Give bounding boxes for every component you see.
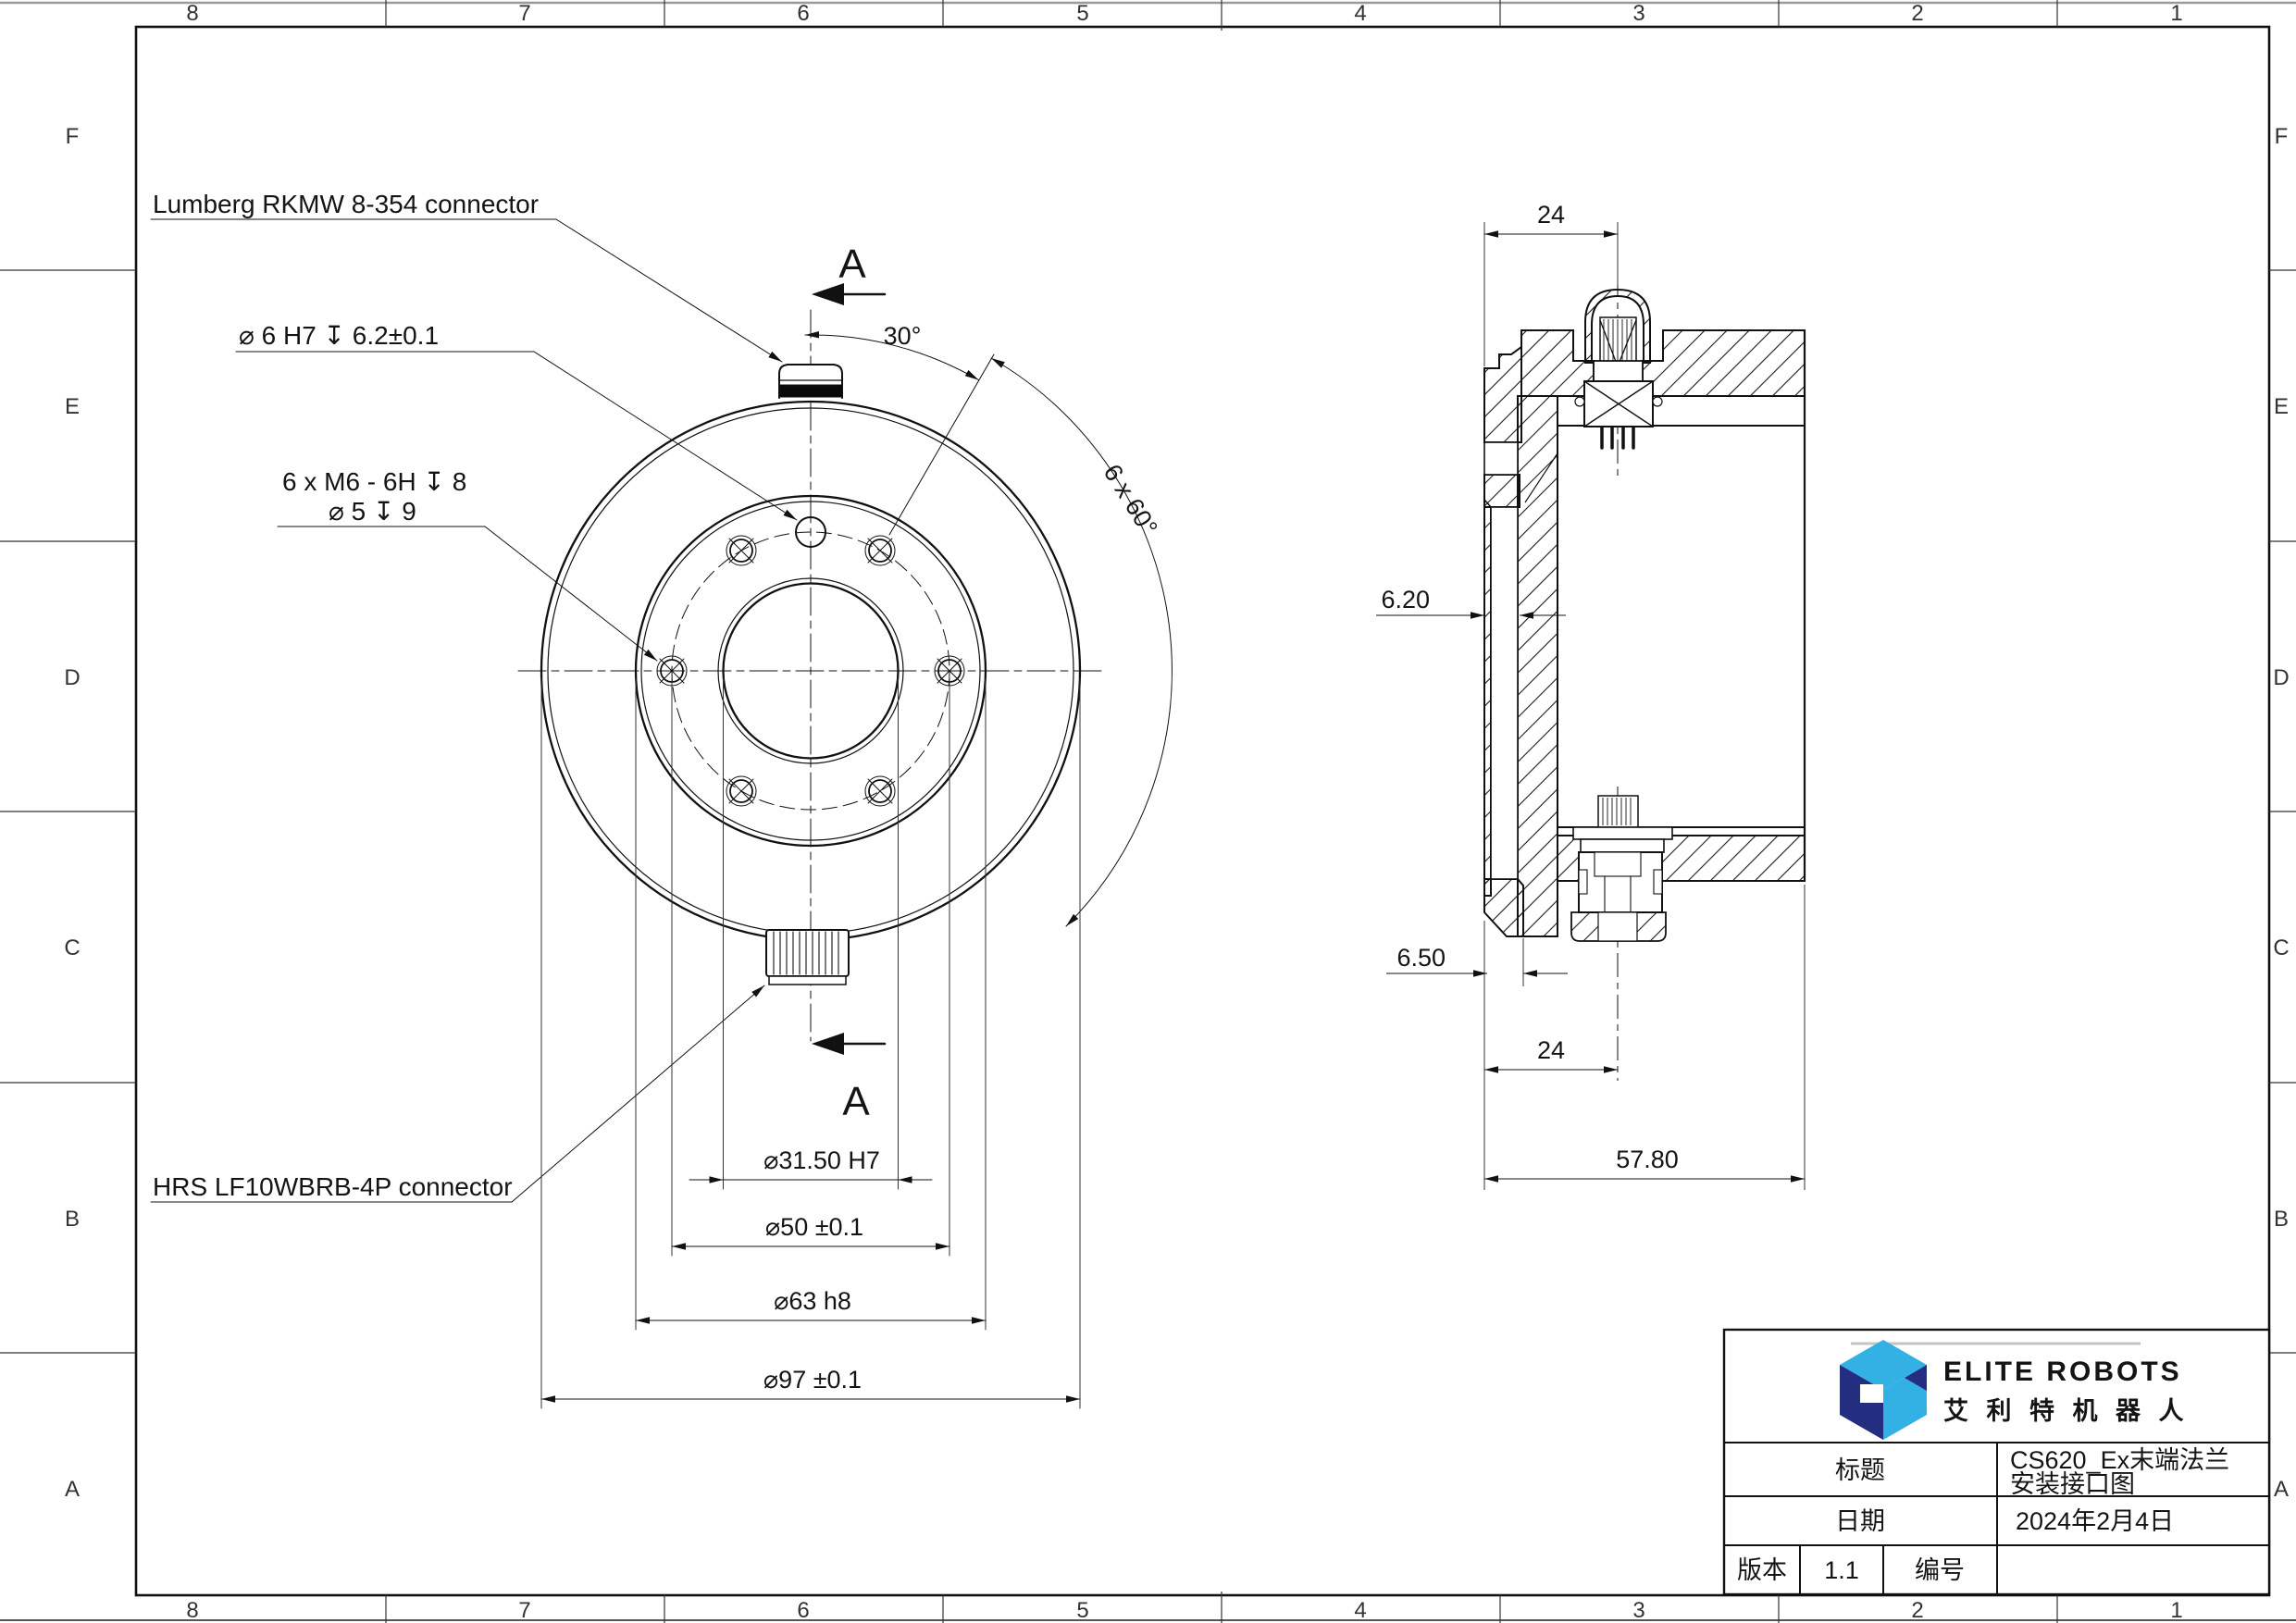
dim-outer-label: ⌀97 ±0.1 (763, 1366, 862, 1394)
grid-col-label: 5 (1076, 1598, 1088, 1623)
grid-col-label: 3 (1632, 1598, 1644, 1623)
tapped-hole (726, 536, 756, 565)
grid-col-label: 6 (797, 1, 809, 26)
grid-col-label: 1 (2170, 1, 2182, 26)
dim-outer: ⌀97 ±0.1 (541, 1366, 1080, 1399)
grid-row-label: D (2273, 665, 2289, 690)
grid-col-label: 7 (518, 1598, 530, 1623)
section-view: 24 6.20 6.50 24 57.80 (1376, 201, 1805, 1190)
number-label: 编号 (1915, 1556, 1965, 1584)
grid-col-label: 8 (186, 1598, 198, 1623)
dim-top-24-label: 24 (1537, 201, 1565, 229)
grid-col-label: 4 (1354, 1, 1366, 26)
dim-5780-label: 57.80 (1616, 1146, 1679, 1173)
grid-row-label: E (2274, 394, 2289, 419)
title-block: ELITE ROBOTS 艾 利 特 机 器 人 标题 CS620_Ex末端法兰… (1724, 1330, 2269, 1594)
dim-boss: ⌀63 h8 (636, 1287, 986, 1320)
grid-col-label: 2 (1911, 1, 1923, 26)
hrs-label: HRS LF10WBRB-4P connector (153, 1172, 513, 1201)
grid-row-label: D (64, 665, 80, 690)
leader-hrs: HRS LF10WBRB-4P connector (151, 985, 764, 1202)
brand-name-en: ELITE ROBOTS (1943, 1357, 2182, 1387)
title-value-line2: 安装接口图 (2010, 1470, 2135, 1498)
front-view: A A 30° 6 x 60° Lumberg RKMW 8-354 conne… (151, 190, 1172, 1408)
grid-row-label: E (65, 394, 80, 419)
grid-row-label: F (2275, 124, 2289, 149)
dim-bore: ⌀31.50 H7 (689, 1146, 932, 1180)
grid-col-label: 6 (797, 1598, 809, 1623)
grid-row-label: F (66, 124, 80, 149)
tapped-hole (865, 776, 895, 806)
grid-row-label: B (65, 1207, 80, 1232)
dim-top-24: 24 (1484, 201, 1618, 234)
dim-620-label: 6.20 (1381, 586, 1430, 613)
grid-row-label: A (2274, 1477, 2289, 1502)
section-arrow-bottom: A (812, 1033, 885, 1124)
grid-col-label: 8 (186, 1, 198, 26)
grid-col-label: 4 (1354, 1598, 1366, 1623)
grid-col-label: 3 (1632, 1, 1644, 26)
grid-row-label: C (64, 935, 80, 960)
grid-row-label: C (2273, 935, 2289, 960)
dim-boss-label: ⌀63 h8 (774, 1287, 851, 1315)
dim-bottom-24: 24 (1484, 1036, 1618, 1070)
title-label: 标题 (1835, 1456, 1885, 1484)
section-outline (1525, 330, 1805, 881)
dim-bolt-circle: ⌀50 ±0.1 (672, 1213, 949, 1246)
section-letter-bottom: A (842, 1079, 870, 1124)
tapped-hole (865, 536, 895, 565)
hrs-connector-section (1571, 787, 1672, 1081)
lumberg-label: Lumberg RKMW 8-354 connector (153, 190, 539, 218)
date-label: 日期 (1835, 1507, 1885, 1535)
tapped-label-line2: ⌀ 5 ↧ 9 (329, 497, 416, 526)
version-value: 1.1 (1824, 1556, 1859, 1584)
dim-650-label: 6.50 (1396, 944, 1446, 972)
grid-row-label: A (65, 1477, 80, 1502)
dim-bolt-circle-label: ⌀50 ±0.1 (765, 1213, 863, 1241)
grid-col-label: 2 (1911, 1598, 1923, 1623)
dim-bottom-24-label: 24 (1537, 1036, 1565, 1064)
grid-col-label: 5 (1076, 1, 1088, 26)
dim-30-label: 30° (884, 322, 922, 350)
section-arrow-top: A (812, 242, 885, 305)
dim-5780: 57.80 (1484, 1146, 1805, 1179)
tapped-label-line1: 6 x M6 - 6H ↧ 8 (282, 467, 466, 496)
leader-tapped: 6 x M6 - 6H ↧ 8 ⌀ 5 ↧ 9 (278, 467, 657, 661)
version-label: 版本 (1737, 1556, 1787, 1584)
lumberg-connector-front (779, 365, 842, 398)
dim-bore-label: ⌀31.50 H7 (763, 1146, 880, 1174)
grid-col-label: 7 (518, 1, 530, 26)
dowel-label: ⌀ 6 H7 ↧ 6.2±0.1 (239, 321, 439, 350)
date-value: 2024年2月4日 (2016, 1507, 2174, 1535)
grid-row-label: B (2274, 1207, 2289, 1232)
grid-col-label: 1 (2170, 1598, 2182, 1623)
lumberg-connector-section (1575, 231, 1662, 481)
section-letter-top: A (838, 242, 866, 287)
hrs-connector-front (766, 930, 849, 985)
brand-name-cn: 艾 利 特 机 器 人 (1943, 1397, 2190, 1425)
dim-650: 6.50 (1386, 944, 1568, 973)
dim-6x60-label: 6 x 60° (1098, 460, 1163, 540)
tapped-hole (726, 776, 756, 806)
drawing-sheet: 8 7 6 5 4 3 2 1 8 7 6 5 4 3 2 1 F E D C … (0, 0, 2296, 1623)
